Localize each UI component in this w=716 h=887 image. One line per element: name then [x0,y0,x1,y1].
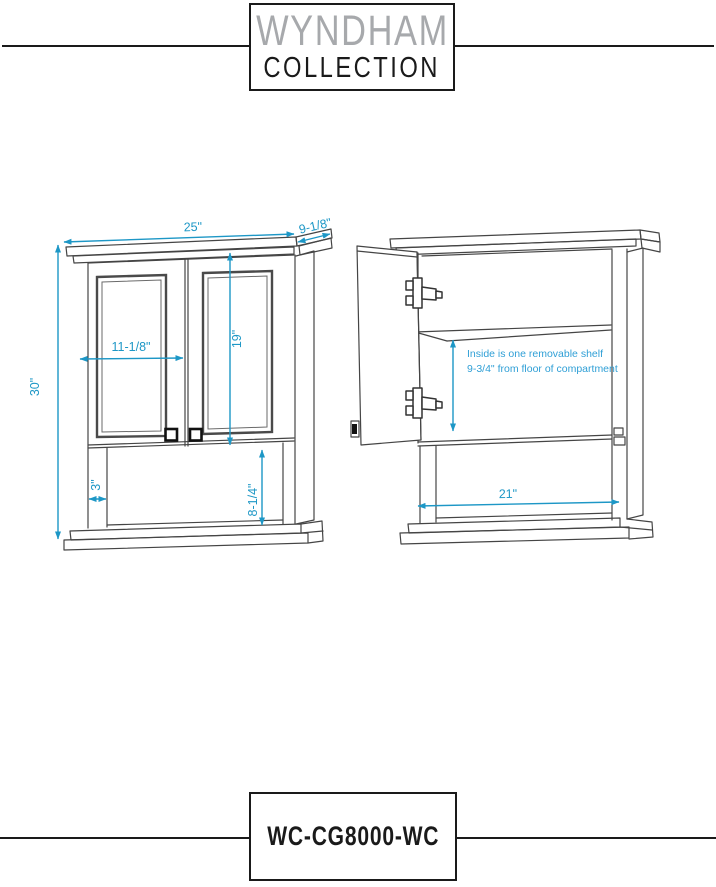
dim-panel-width: 11-1/8" [80,340,183,359]
right-door-panel-inner [208,276,267,429]
front-side-face [296,251,314,524]
front-base-top [70,524,301,540]
shelf-back-edge [415,325,611,332]
door-catch-icon [614,428,623,435]
dim-label-height: 30" [28,378,42,396]
shelf-note-line1: Inside is one removable shelf [467,348,603,360]
footer-rule-left [0,837,249,839]
technical-drawing: 30" 25" 9-1/8" 11-1/8" 19" 3" [0,0,716,887]
dim-panel-height: 19" [230,253,244,445]
dim-label-open-height: 8-1/4" [246,484,260,517]
door-knob-icon [190,429,202,441]
right-door-panel [203,271,272,434]
dim-label-depth: 9-1/8" [297,216,332,237]
door-knob-icon [352,424,357,434]
model-number-box: WC-CG8000-WC [249,792,457,881]
side-base-return-step [620,527,652,530]
dim-label-leg: 3" [89,479,103,490]
compartment-floor-bottom [418,439,612,446]
shelf-left-edge [415,332,447,341]
side-base-bottom [400,527,629,544]
door-catch-icon [614,437,625,445]
doors-top-edge [88,255,294,263]
left-door-panel-inner [102,280,161,432]
front-crown-top [66,237,297,256]
side-shelf-back-line [436,513,612,518]
shelf-note-line2: 9-3/4" from floor of compartment [467,363,618,375]
front-base-return-step [301,531,323,533]
compartment-floor-top [418,435,612,442]
side-base-top [408,518,620,533]
dim-height-30: 30" [28,245,58,539]
front-view-drawing: 30" 25" 9-1/8" 11-1/8" 19" 3" [28,216,333,550]
model-number: WC-CG8000-WC [267,821,439,852]
front-base-bottom [64,533,308,550]
dim-shelf-span: 21" [418,487,619,506]
shelf-front-edge [447,330,611,341]
dim-label-panel-height: 19" [230,330,244,348]
front-shelf-back-line [107,520,283,525]
side-crown-return-step [641,239,660,252]
footer-rule-right [457,837,716,839]
front-crown-step [73,247,294,263]
dim-depth-9-1-8: 9-1/8" [297,216,332,242]
dim-leg-width: 3" [89,479,106,499]
side-right-face [627,248,643,519]
side-crown-top [390,230,641,248]
left-door-panel [97,275,166,437]
door-knob-icon [166,429,178,441]
dim-label-panel-width: 11-1/8" [112,340,151,354]
dim-open-height: 8-1/4" [246,450,262,525]
dim-label-shelf-span: 21" [499,487,518,501]
dim-label-width: 25" [183,220,202,235]
side-view-drawing: Inside is one removable shelf 9-3/4" fro… [351,230,660,544]
spec-sheet-page: WYNDHAM COLLECTION [0,0,716,887]
